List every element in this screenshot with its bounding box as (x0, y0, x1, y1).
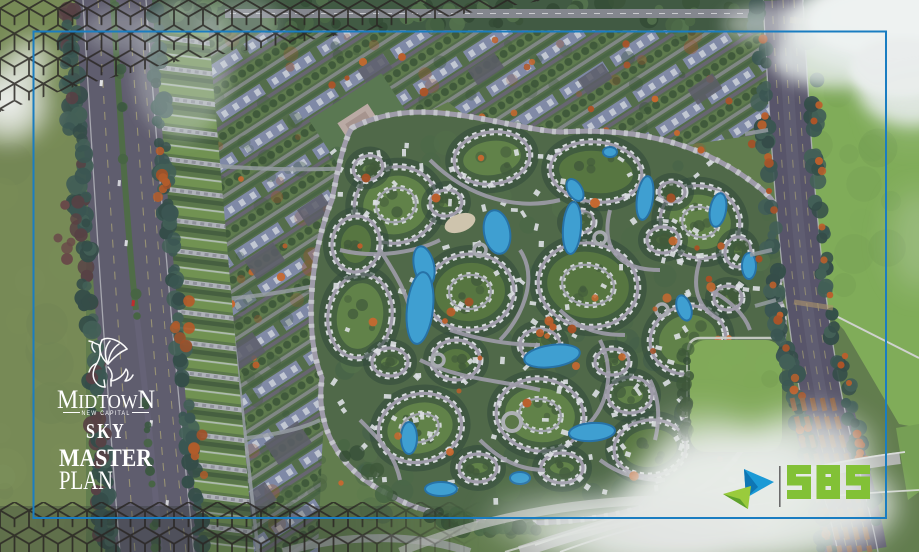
svg-text:SKY: SKY (86, 419, 126, 443)
svg-text:PLAN: PLAN (59, 466, 113, 495)
svg-text:NEW CAPITAL: NEW CAPITAL (82, 410, 131, 417)
